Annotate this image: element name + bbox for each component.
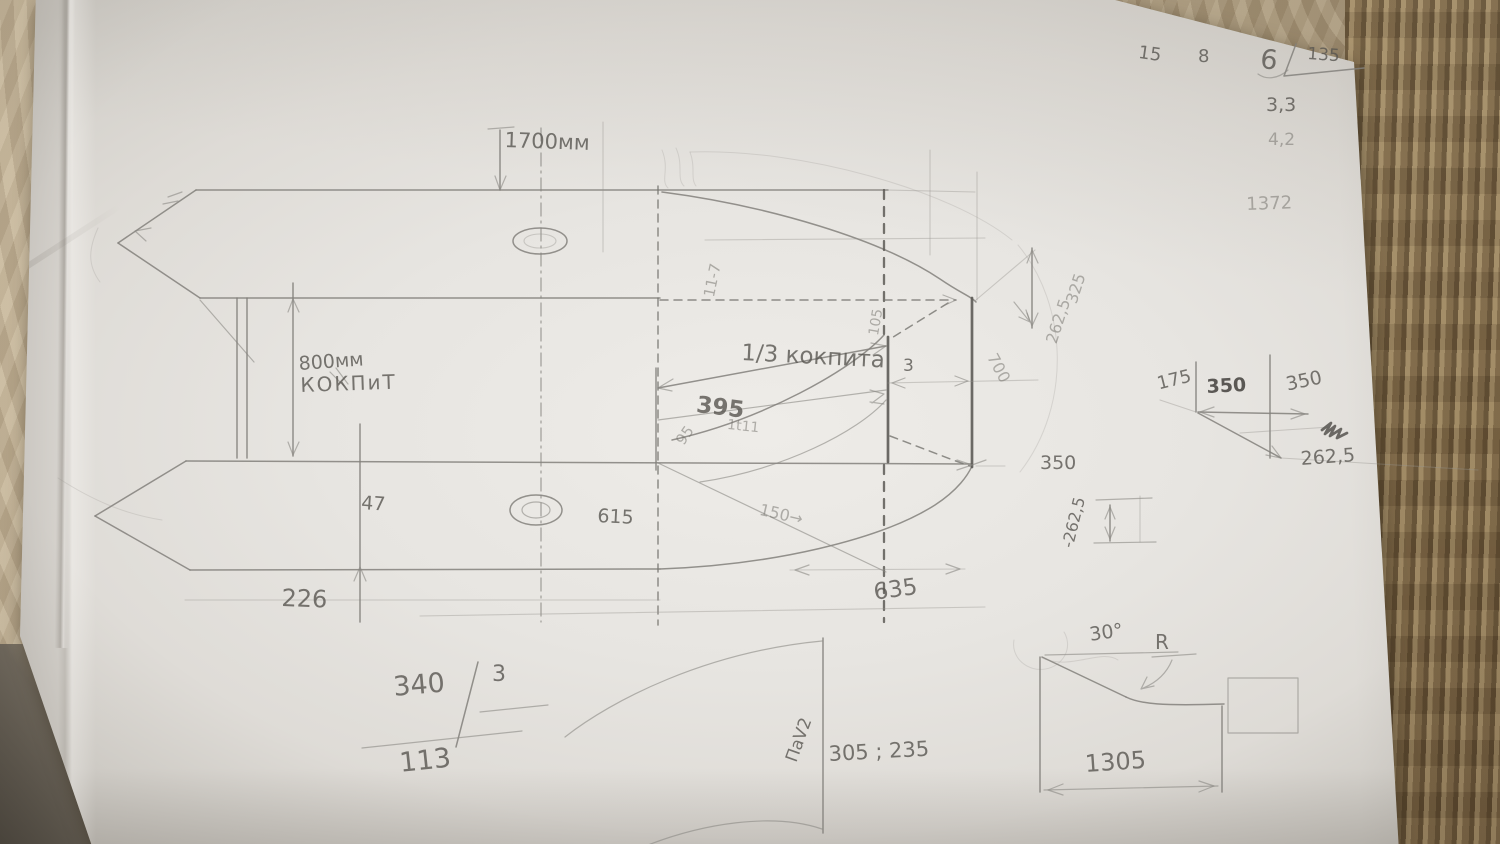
label-num-3-3: 3,3	[1266, 94, 1296, 116]
label-30deg: 30°	[1088, 619, 1124, 645]
label-47: 47	[360, 492, 386, 516]
label-length-1700: 1700мм	[504, 128, 590, 155]
label-calc-113: 113	[398, 743, 453, 779]
label-num-4-2: 4,2	[1268, 130, 1295, 150]
label-350-tip: 350	[1040, 452, 1076, 474]
label-calc-340: 340	[392, 668, 446, 703]
photo-of-boat-sketch: 1700мм 800мм КОКПиТ 1/3 кокпита 395 1t11…	[0, 0, 1500, 844]
lower-pontoon	[95, 368, 972, 570]
hull-profile-sketch	[1014, 632, 1298, 795]
label-3-small: 3	[903, 356, 914, 376]
label-615: 615	[597, 505, 634, 529]
label-1t11: 1t11	[726, 417, 760, 436]
label-calc-3: 3	[492, 662, 506, 687]
upper-pontoon	[118, 190, 976, 458]
label-262-5-right: 262,5	[1300, 444, 1356, 470]
label-226: 226	[281, 584, 328, 614]
main-dimensions	[288, 127, 1038, 622]
division-calc-strokes	[362, 662, 548, 748]
label-num-135: 135	[1307, 44, 1341, 66]
offset-bracket	[1094, 496, 1156, 543]
label-1305: 1305	[1084, 746, 1147, 778]
label-num-1372: 1372	[1246, 192, 1293, 215]
label-num-8: 8	[1198, 46, 1209, 67]
curved-template-sketch	[565, 638, 823, 844]
label-num-6: 6	[1259, 44, 1279, 77]
label-kokpit: КОКПиТ	[300, 370, 397, 397]
label-350-a: 350	[1206, 374, 1247, 398]
label-R: R	[1155, 630, 1169, 654]
label-num-15: 15	[1137, 42, 1163, 66]
